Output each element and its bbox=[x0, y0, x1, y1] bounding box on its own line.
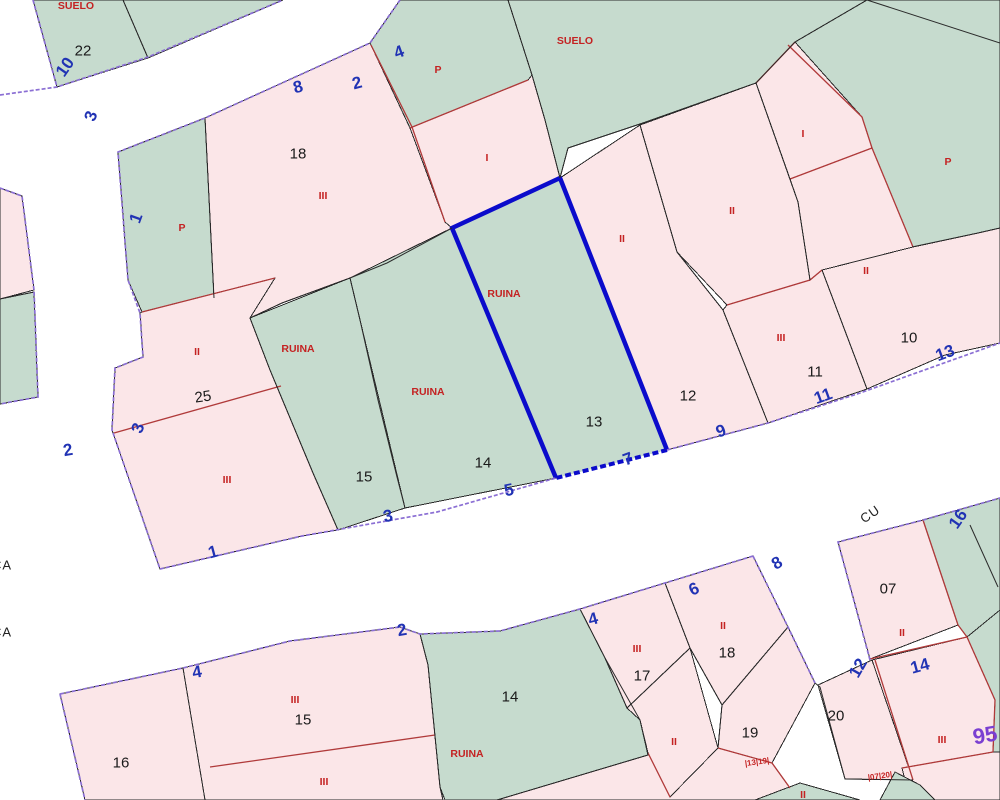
cadastral-map-viewport[interactable]: SUELOSUELOPIPIIIIIIIIRUINARUINARUINAIIII… bbox=[0, 0, 1000, 800]
parcel-left-green[interactable] bbox=[0, 292, 38, 404]
parcel-number-10: 10 bbox=[901, 330, 918, 347]
suelo-label: SUELO bbox=[58, 0, 94, 12]
parcel-15-bottom[interactable] bbox=[183, 627, 443, 800]
map-sheet-number-95: 95 bbox=[971, 721, 999, 750]
class-mark-iii: III bbox=[777, 332, 786, 344]
parcel-number-13: 13 bbox=[586, 414, 603, 431]
parcel-number-07: 07 bbox=[880, 581, 897, 598]
parcel-number-22: 22 bbox=[75, 43, 92, 60]
class-mark-ii: II bbox=[619, 233, 625, 245]
class-mark-p: P bbox=[434, 64, 441, 76]
street-number-3: 3 bbox=[80, 108, 101, 123]
street-number-2: 2 bbox=[62, 440, 75, 460]
street-number-2: 2 bbox=[396, 620, 409, 640]
parcel-number-14: 14 bbox=[475, 455, 492, 472]
class-mark-iii: III bbox=[319, 190, 328, 202]
street-name-ca: CA bbox=[0, 558, 12, 573]
class-mark-iii: III bbox=[633, 643, 642, 655]
parcel-number-18: 18 bbox=[290, 146, 307, 163]
class-mark-ii: II bbox=[863, 265, 869, 277]
parcel-number-18: 18 bbox=[719, 645, 736, 662]
street-name-ca: CA bbox=[0, 625, 12, 640]
class-mark-i: I bbox=[802, 128, 805, 140]
parcel-number-17: 17 bbox=[634, 668, 651, 685]
class-mark-i: I bbox=[486, 152, 489, 164]
parcel-number-15: 15 bbox=[356, 469, 373, 486]
parcel-number-19: 19 bbox=[742, 725, 759, 742]
street-name-cu: CU bbox=[857, 502, 883, 526]
ruina-label: RUINA bbox=[450, 748, 484, 760]
ruina-label: RUINA bbox=[281, 343, 315, 355]
parcel-number-15: 15 bbox=[295, 712, 312, 729]
parcel-16[interactable] bbox=[60, 668, 205, 800]
class-mark-ii: II bbox=[729, 205, 735, 217]
class-mark-ii: II bbox=[899, 627, 905, 639]
parcel-number-12: 12 bbox=[680, 388, 697, 405]
class-mark-iii: III bbox=[223, 474, 232, 486]
class-mark-p: P bbox=[944, 156, 951, 168]
class-mark-p: P bbox=[178, 222, 185, 234]
parcel-number-20: 20 bbox=[828, 708, 845, 725]
parcel-number-16: 16 bbox=[113, 755, 130, 772]
class-mark-ii: II bbox=[800, 789, 806, 800]
suelo-label: SUELO bbox=[557, 35, 593, 47]
parcel-number-14: 14 bbox=[502, 689, 519, 706]
parcel-left-pink[interactable] bbox=[0, 188, 34, 299]
parcel-green-sliver[interactable] bbox=[123, 0, 283, 58]
class-mark-iii: III bbox=[320, 776, 329, 788]
class-mark-ii: II bbox=[671, 736, 677, 748]
street-number-8: 8 bbox=[768, 552, 786, 573]
cadastral-map[interactable]: SUELOSUELOPIPIIIIIIIIRUINARUINARUINAIIII… bbox=[0, 0, 1000, 800]
ruina-label: RUINA bbox=[487, 288, 521, 300]
class-mark-ii: II bbox=[194, 346, 200, 358]
class-mark-iii: III bbox=[291, 694, 300, 706]
class-mark-iii: III bbox=[938, 734, 947, 746]
parcel-number-11: 11 bbox=[807, 364, 823, 381]
class-mark-ii: II bbox=[720, 620, 726, 632]
ruina-label: RUINA bbox=[411, 386, 445, 398]
parcel-number-25: 25 bbox=[194, 387, 213, 406]
